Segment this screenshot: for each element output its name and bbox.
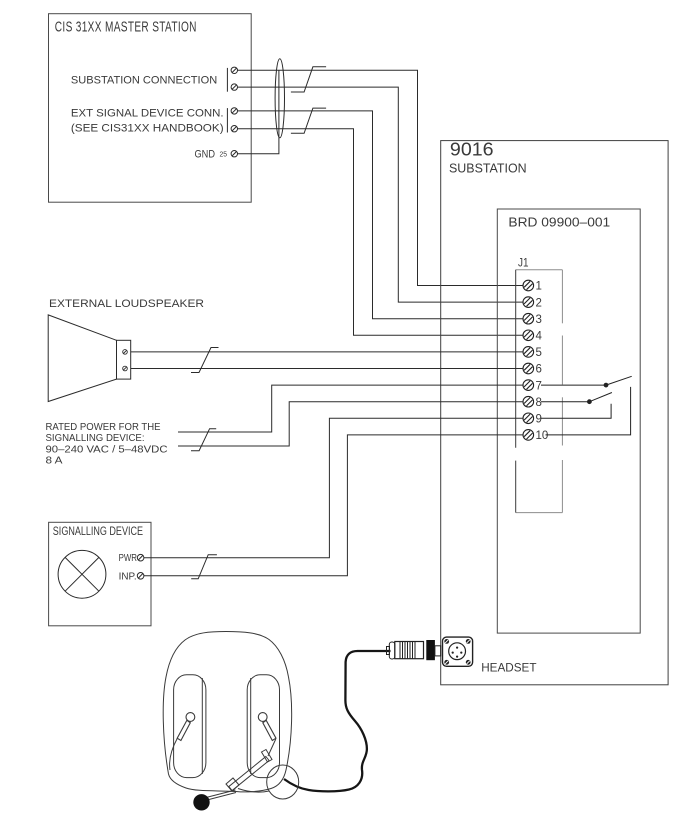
- svg-text:BRD 09900–001: BRD 09900–001: [508, 215, 610, 230]
- svg-text:9: 9: [536, 414, 542, 426]
- svg-text:INP.: INP.: [119, 571, 137, 582]
- svg-text:8 A: 8 A: [46, 454, 63, 466]
- svg-text:SIGNALLING DEVICE:: SIGNALLING DEVICE:: [46, 432, 145, 444]
- svg-text:25: 25: [220, 150, 228, 159]
- svg-text:(SEE CIS31XX HANDBOOK): (SEE CIS31XX HANDBOOK): [71, 122, 224, 134]
- svg-text:3: 3: [536, 314, 542, 326]
- svg-text:4: 4: [536, 331, 543, 343]
- svg-text:8: 8: [536, 397, 542, 409]
- svg-text:SUBSTATION CONNECTION: SUBSTATION CONNECTION: [71, 75, 217, 87]
- svg-text:J1: J1: [518, 256, 529, 270]
- svg-text:1: 1: [536, 281, 542, 293]
- svg-text:5: 5: [536, 347, 542, 359]
- svg-text:RATED POWER FOR THE: RATED POWER FOR THE: [46, 421, 161, 433]
- svg-text:HEADSET: HEADSET: [481, 660, 537, 674]
- svg-text:CIS 31XX MASTER STATION: CIS 31XX MASTER STATION: [55, 19, 197, 36]
- svg-text:10: 10: [536, 430, 549, 442]
- svg-text:EXT SIGNAL DEVICE CONN.: EXT SIGNAL DEVICE CONN.: [71, 107, 224, 119]
- svg-text:EXTERNAL LOUDSPEAKER: EXTERNAL LOUDSPEAKER: [49, 298, 204, 310]
- svg-text:7: 7: [536, 380, 542, 392]
- svg-text:2: 2: [536, 297, 542, 309]
- svg-text:90–240 VAC / 5–48VDC: 90–240 VAC / 5–48VDC: [46, 443, 168, 455]
- svg-text:SUBSTATION: SUBSTATION: [449, 161, 527, 175]
- svg-text:PWR: PWR: [119, 553, 137, 564]
- svg-text:SIGNALLING DEVICE: SIGNALLING DEVICE: [53, 524, 143, 538]
- svg-text:GND: GND: [195, 148, 216, 160]
- svg-text:6: 6: [536, 364, 542, 376]
- svg-text:9016: 9016: [450, 138, 494, 159]
